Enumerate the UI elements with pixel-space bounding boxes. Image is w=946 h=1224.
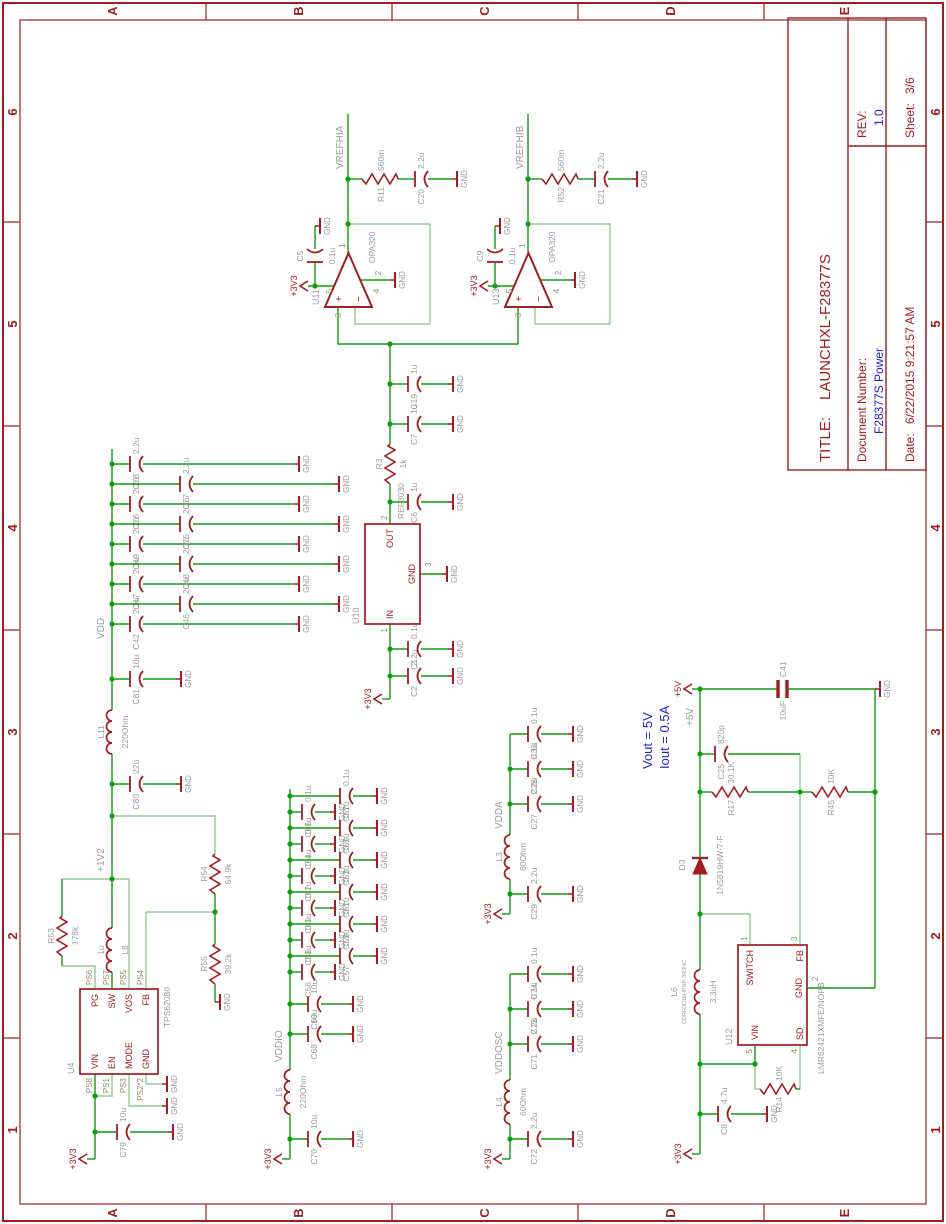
power-flag-+3V3: +3V3 [483,1148,493,1169]
value-C30: 0.1u [529,707,539,724]
pin-num-U11-1: 1 [338,243,347,248]
schematic-page: 1 2 3 4 5 6 1 2 3 4 5 6 A B C D E A B C [0,0,946,1224]
component-C79 [127,1124,131,1140]
pin-num-U4-PS1: PS1 [102,1077,111,1093]
pin-name-U4-MODE: MODE [124,1042,134,1069]
power-flag-arrow [684,684,692,694]
gnd-label: GND [338,835,347,853]
gnd-label: GND [576,1130,585,1148]
date-label: Date: [903,433,917,462]
ref-C30: C30 [529,744,539,760]
gnd-label: GND [170,1075,179,1093]
ref-C46: C46 [181,614,191,630]
gnd-label: GND [640,170,649,188]
opamp-minus-U11: − [354,296,365,302]
pin-name-U4-GND: GND [141,1049,151,1070]
gnd-label: GND [338,867,347,885]
value-C20: 2.2u [416,152,426,169]
title-block: TITLE: LAUNCHXL-F28377S Document Number:… [788,18,926,470]
frame-col-label: 2 [928,932,943,939]
frame-row-label: A [105,6,120,16]
frame-row-label: D [663,1208,678,1217]
value-C29: 2.2u [529,867,539,884]
ref-L8: L8 [120,945,130,955]
component-R3 [385,444,395,484]
part-U10: REF3030 [396,483,406,519]
ref-C77: C77 [181,494,191,510]
junction-dot [387,499,392,504]
component-R45 [812,787,848,797]
ref-C73: C73 [529,1019,539,1035]
component-C76 [140,496,144,512]
part-U12: LMR62421XMFE/NOPB [816,982,826,1074]
junction-dot [507,1006,512,1011]
pin-name-U4-SW: SW [107,993,117,1008]
value-R53: 178k [70,926,80,945]
junction-dot [507,891,512,896]
component-C69 [318,996,322,1012]
junction-dot [109,781,114,786]
power-flag-+3V3: +3V3 [263,1148,273,1169]
frame-row-label: A [105,1208,120,1218]
pin-num-U13-3: 3 [514,312,523,317]
junction-dot [312,283,317,288]
value-C25: 820p [716,725,726,744]
pin-name-U12-FB: FB [795,950,805,962]
ref-C1: C1 [409,659,419,670]
wire [348,224,430,324]
component-D3 [693,858,707,874]
ref-R17: R17 [726,800,736,816]
component-R55 [210,944,220,984]
schematic-sheet: 1 2 3 4 5 6 1 2 3 4 5 6 A B C D E A B C [0,0,946,1224]
doc-number-label: Document Number: [855,358,869,462]
component-C71 [538,1036,542,1052]
frame-row-label: E [837,1208,852,1217]
junction-dot [92,1129,97,1134]
junction-dot [387,646,392,651]
ref-C66: C66 [303,822,313,838]
ref-C58: C58 [303,950,313,966]
doc-number-value: F28377S Power [872,348,886,434]
ref-R53: R53 [46,928,56,944]
component-C30 [538,726,542,742]
junction-dot [287,793,292,798]
gnd-label: GND [302,615,311,633]
wire [338,307,518,344]
junction-dot [697,1111,702,1116]
power-flag-+3V3: +3V3 [289,275,299,296]
component-C27 [538,796,542,812]
pin-num-U12-4: 4 [790,1048,799,1053]
junction-dot [697,686,702,691]
wire [112,816,215,854]
frame-col-label: 3 [928,728,943,735]
pin-name-U4-EN: EN [107,1056,117,1069]
wire [528,224,610,324]
gnd-label: GND [356,1025,365,1043]
ref-C28: C28 [529,779,539,795]
component-C49 [140,536,144,552]
rev-label: REV: [855,110,869,138]
title-label: TITLE: [817,417,834,462]
ref-R52: R52 [556,187,566,203]
frame-col-label: 6 [928,108,943,115]
gnd-label: GND [302,575,311,593]
junction-dot [697,911,702,916]
part-U13: OPA320 [547,231,557,263]
value-C72: 2.2u [529,1112,539,1129]
pin-num-U12-3: 3 [790,936,799,941]
value-L11: 220Ohm [120,716,130,749]
value-C79: 10u [118,1108,128,1122]
net-label-VREFHIA: VREFHIA [335,125,346,169]
ref-L5: L5 [274,1087,284,1097]
pin-num-U11-3: 3 [334,312,343,317]
value-C67: 0.1u [341,769,351,786]
value-L3: 60Ohm [518,843,528,871]
junction-dot [507,1041,512,1046]
net-label-+1V2: +1V2 [96,848,107,872]
ref-U13: U13 [491,288,501,305]
net-label-+5V: +5V [685,708,696,726]
junction-dot [752,1061,757,1066]
junction-dot [507,801,512,806]
component-C20 [425,171,429,187]
gnd-label: GND [338,899,347,917]
sheet-number-value: 3/6 [903,77,917,94]
note-text: 3.3uH [708,981,718,1004]
gnd-label: GND [302,495,311,513]
component-R14 [760,1084,796,1094]
junction-dot [345,176,350,181]
date-value: 6/22/2015 9:21:57 AM [903,307,917,424]
component-R53 [57,916,67,956]
ref-U4: U4 [66,1062,76,1074]
gnd-label: GND [576,725,585,743]
gnd-label: GND [338,803,347,821]
component-C81 [140,671,144,687]
value-C66: 0.1u [303,785,313,802]
wire [700,1045,755,1064]
junction-dot [387,381,392,386]
frame-row-label: E [837,6,852,15]
gnd-label: GND [342,595,351,613]
frame-col-label: 6 [5,108,20,115]
ref-C81: C81 [131,689,141,705]
pin-name-U10-GND: GND [407,564,417,585]
power-flag-+3V3: +3V3 [483,903,493,924]
ref-U10: U10 [351,607,361,624]
component-C19 [418,376,422,392]
frame-row-label: C [477,6,492,16]
junction-dot [92,1093,97,1098]
junction-dot [109,501,114,506]
ref-C72: C72 [529,1149,539,1165]
component-R54 [210,854,220,894]
pin-name-U4-PG: PG [90,994,100,1007]
schematic-drawing: C7910uC8022uC8110uC422.2uC472.2uC492.2uC… [46,114,892,1170]
ref-C49: C49 [131,554,141,570]
pin-num-U10-2: 2 [380,515,389,520]
junction-dot [287,953,292,958]
wire [146,912,215,989]
component-C72 [538,1131,542,1147]
junction-dot [345,221,350,226]
gnd-label: GND [456,640,465,658]
pin-name-U10-IN: IN [385,610,395,619]
junction-dot [287,1136,292,1141]
gnd-label: GND [184,775,193,793]
ref-C64: C64 [303,854,313,870]
ref-R55: R55 [199,956,209,972]
junction-dot [287,937,292,942]
junction-dot [109,621,114,626]
ref-C27: C27 [529,814,539,830]
power-flag-arrow [274,1154,282,1164]
pin-num-U11-5: 5 [325,288,334,293]
value-C78: 2.2u [131,437,141,454]
ref-C60: C60 [303,918,313,934]
value-R45: 10K [826,769,836,784]
junction-dot [287,809,292,814]
junction-dot [212,909,217,914]
gnd-label: GND [338,931,347,949]
component-C25 [725,746,729,762]
frame-col-label: 3 [5,728,20,735]
value-C5: 0.1u [327,247,337,264]
frame-col-label: 1 [5,1126,20,1133]
power-flag-arrow [79,1154,87,1164]
junction-dot [109,876,114,881]
net-label-VREFHIB: VREFHIB [515,125,526,169]
note-text: CDRH3D16HPNP-3R3NC [682,960,688,1024]
junction-dot [525,221,530,226]
pin-num-U12-5: 5 [745,1048,754,1053]
pin-num-U4-PS3: PS3 [119,1077,128,1093]
pin-num-U12-2: 2 [811,976,820,981]
note-text: L6 [669,987,679,997]
ref-C71: C71 [529,1054,539,1070]
gnd-label: GND [380,947,389,965]
junction-dot [387,341,392,346]
net-label-VDDA: VDDA [494,801,505,829]
component-C48 [190,556,194,572]
value-C41: 10uF [778,701,788,720]
power-flag-+3V3: +3V3 [469,275,479,296]
junction-dot [387,421,392,426]
gnd-label: GND [456,493,465,511]
pin-num-U4-PS6: PS6 [85,969,94,985]
rev-value: 1.0 [872,109,886,126]
note-text: Iout = 0.5A [657,705,672,769]
pin-num-U11-4: 4 [372,288,381,293]
gnd-label: GND [380,883,389,901]
component-R52 [542,174,578,184]
value-C77: 2.2u [181,457,191,474]
ref-C74: C74 [529,984,539,1000]
pin-num-U11-2: 2 [374,270,383,275]
junction-dot [287,1001,292,1006]
power-flag-arrow [300,281,308,291]
ref-C25: C25 [716,764,726,780]
ref-R3: R3 [374,458,384,469]
ref-C42: C42 [131,634,141,650]
ref-C56: C56 [303,982,313,998]
gnd-label: GND [576,795,585,813]
ref-C47: C47 [131,594,141,610]
component-C70 [318,1131,322,1147]
gnd-label: GND [342,515,351,533]
gnd-label: GND [450,565,459,583]
ref-C79: C79 [118,1142,128,1158]
frame-col-label: 1 [928,1126,943,1133]
power-flag-arrow [494,1154,502,1164]
sheet-number-label: Sheet: [903,103,917,138]
gnd-label: GND [323,217,332,235]
junction-dot [109,601,114,606]
value-R55: 39.2k [223,953,233,975]
gnd-label: GND [302,455,311,473]
power-flag-arrow [374,694,382,704]
junction-dot [109,813,114,818]
ref-R11: R11 [376,187,386,202]
junction-dot [109,561,114,566]
junction-dot [387,673,392,678]
junction-dot [287,825,292,830]
junction-dot [507,1136,512,1141]
component-C46 [190,596,194,612]
component-L5 [285,1070,290,1114]
gnd-label: GND [380,915,389,933]
ref-C69: C69 [309,1014,319,1030]
value-C19: 1u [409,364,419,374]
pin-name-U4-VOS: VOS [124,994,134,1013]
value-C6: 1u [409,482,419,492]
gnd-label: GND [576,965,585,983]
ref-C29: C29 [529,904,539,920]
value-R14: 10K [774,1066,784,1081]
opamp-minus-U13: − [534,296,545,302]
gnd-label: GND [176,1123,185,1141]
frame-col-label: 5 [5,320,20,327]
ref-D3: D3 [677,859,687,870]
value-C9: 0.1u [507,247,517,264]
gnd-label: GND [356,995,365,1013]
component-L3 [505,835,511,879]
value-C8: 4.7u [719,1087,729,1104]
gnd-label: GND [456,415,465,433]
ref-R45: R45 [826,800,836,816]
ref-C68: C68 [309,1044,319,1060]
pin-num-U10-1: 1 [380,627,389,632]
net-label-VDDIO: VDDIO [274,1030,285,1062]
gnd-label: GND [380,787,389,805]
component-L8 [107,928,113,972]
pin-num-U13-1: 1 [518,243,527,248]
pin-num-U4-PS2*2: PS2*2 [136,1077,145,1100]
pin-num-U4-PS7: PS7 [102,969,111,985]
pin-num-U4-PS8: PS8 [85,1077,94,1093]
component-C77 [190,476,194,492]
power-flag-+3V3: +3V3 [68,1148,78,1169]
frame-col-label: 4 [928,524,943,532]
junction-dot [109,676,114,681]
component-C8 [728,1106,732,1122]
gnd-label: GND [770,1105,779,1123]
power-flag-+3V3: +3V3 [363,688,373,709]
ref-C5: C5 [295,250,305,261]
junction-dot [109,481,114,486]
value-R11: 560m [376,150,386,171]
junction-dot [287,889,292,894]
component-C74 [538,966,542,982]
component-C73 [538,1001,542,1017]
ref-L3: L3 [494,852,504,862]
junction-dot [287,857,292,862]
junction-dot [109,581,114,586]
ref-C48: C48 [181,574,191,590]
frame-row-label: D [663,6,678,15]
frame-row-label: C [477,1208,492,1218]
frame-row-label: B [291,1208,306,1217]
ref-C75: C75 [181,534,191,550]
component-C78 [140,456,144,472]
component-C42 [140,616,144,632]
pin-name-U12-SD: SD [795,1027,805,1040]
pin-num-U4-PS4: PS4 [136,969,145,985]
component-C7 [418,416,422,432]
junction-dot [697,789,702,794]
power-flag-arrow [684,1149,692,1159]
frame-col-label: 5 [928,320,943,327]
gnd-label: GND [342,555,351,573]
gnd-label: GND [883,680,892,698]
power-flag-+5V: +5V [673,681,683,697]
junction-dot [287,969,292,974]
component-C9 [487,249,503,253]
junction-dot [507,766,512,771]
gnd-label: GND [302,535,311,553]
component-C29 [538,886,542,902]
pin-num-U10-3: 3 [424,562,433,567]
pin-name-U12-VIN: VIN [750,1025,760,1040]
junction-dot [492,283,497,288]
ref-C78: C78 [131,474,141,490]
pin-num-U13-5: 5 [505,288,514,293]
power-flag-arrow [494,909,502,919]
ref-C76: C76 [131,514,141,530]
value-R54: 64.9k [223,863,233,885]
component-C80 [140,776,144,792]
pin-name-U4-FB: FB [141,994,151,1006]
component-R17 [712,787,748,797]
power-flag-arrow [480,281,488,291]
junction-dot [287,1031,292,1036]
gnd-label: GND [398,271,407,289]
frame-row-label: B [291,6,306,15]
gnd-label: GND [338,963,347,981]
component-C28 [538,761,542,777]
gnd-label: GND [223,993,232,1011]
component-C47 [140,576,144,592]
gnd-label: GND [576,885,585,903]
gnd-label: GND [380,819,389,837]
ref-C21: C21 [596,189,606,205]
value-R3: 1k [398,459,408,469]
net-label-VDD: VDD [96,618,107,639]
junction-dot [287,905,292,910]
